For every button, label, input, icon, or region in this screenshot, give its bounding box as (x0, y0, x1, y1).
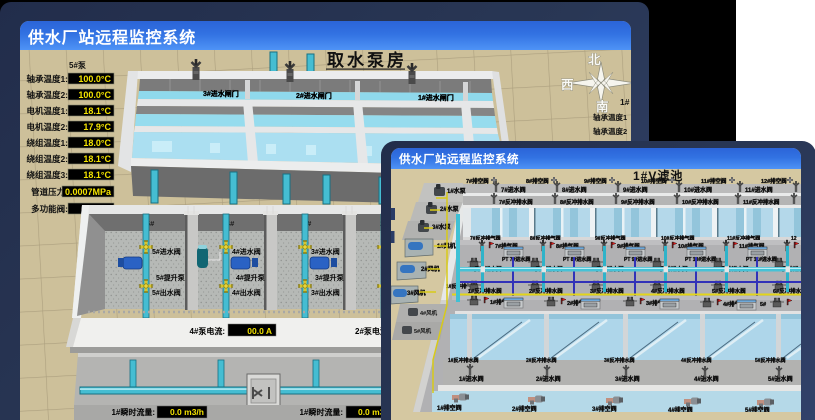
svg-text:18.0°C: 18.0°C (83, 138, 111, 148)
svg-text:8#排空阀: 8#排空阀 (526, 177, 549, 185)
svg-text:3#提升泵: 3#提升泵 (315, 273, 344, 282)
svg-text:3#进水阀: 3#进水阀 (615, 375, 640, 383)
svg-text:3#出水阀: 3#出水阀 (311, 288, 340, 297)
svg-text:1#排空阀: 1#排空阀 (437, 404, 462, 412)
svg-text:3#反冲排水阀: 3#反冲排水阀 (604, 357, 635, 364)
svg-text:南: 南 (596, 99, 609, 114)
svg-text:3#进水闸门: 3#进水闸门 (203, 89, 239, 98)
svg-text:11#反冲排水阀: 11#反冲排水阀 (743, 198, 780, 206)
svg-text:2#水泵: 2#水泵 (440, 205, 460, 213)
svg-text:5#提升泵: 5#提升泵 (156, 273, 185, 282)
svg-text:2#进水阀: 2#进水阀 (536, 375, 561, 383)
svg-text:3#水泵: 3#水泵 (432, 223, 452, 231)
svg-text:供水厂站远程监控系统: 供水厂站远程监控系统 (398, 152, 519, 166)
svg-text:5#进水阀: 5#进水阀 (152, 247, 181, 256)
svg-text:1#进水阀: 1#进水阀 (459, 375, 484, 383)
svg-text:11#进水阀: 11#进水阀 (745, 186, 773, 194)
svg-text:4#出水阀: 4#出水阀 (232, 288, 261, 297)
svg-text:电机温度1:: 电机温度1: (26, 106, 68, 116)
svg-text:5#: 5# (760, 302, 766, 308)
svg-text:5#风机: 5#风机 (414, 327, 432, 335)
svg-text:9#反冲排水阀: 9#反冲排水阀 (621, 198, 655, 206)
svg-text:1#水泵: 1#水泵 (447, 187, 467, 195)
svg-text:7#进水阀: 7#进水阀 (501, 186, 526, 194)
svg-text:PT 7#进水阀: PT 7#进水阀 (502, 256, 530, 263)
svg-text:10#反冲排水阀: 10#反冲排水阀 (682, 198, 719, 206)
svg-text:11#排空阀: 11#排空阀 (701, 177, 727, 185)
svg-text:10#排空阀: 10#排空阀 (641, 177, 667, 185)
svg-text:00.0 A: 00.0 A (247, 326, 272, 336)
svg-text:12#排空阀: 12#排空阀 (761, 177, 787, 185)
svg-text:4#反冲排水阀: 4#反冲排水阀 (681, 357, 712, 364)
svg-text:7#反冲排水阀: 7#反冲排水阀 (499, 198, 533, 206)
svg-text:多功能阀:: 多功能阀: (31, 204, 68, 214)
svg-text:4#进水阀: 4#进水阀 (694, 375, 719, 383)
svg-text:1#瞬时流量:: 1#瞬时流量: (299, 407, 343, 417)
svg-text:18.1°C: 18.1°C (83, 154, 111, 164)
svg-text:绕组温度1:: 绕组温度1: (26, 138, 68, 148)
svg-text:10#进水阀: 10#进水阀 (684, 186, 712, 194)
svg-text:绕组温度3:: 绕组温度3: (26, 170, 68, 180)
svg-text:2#排空阀: 2#排空阀 (512, 405, 537, 413)
svg-text:9#排空阀: 9#排空阀 (584, 177, 607, 185)
svg-text:18.1°C: 18.1°C (83, 170, 111, 180)
svg-text:0.0 m3/h: 0.0 m3/h (170, 407, 204, 417)
svg-text:8#反冲排水阀: 8#反冲排水阀 (560, 198, 594, 206)
svg-text:电机温度2:: 电机温度2: (26, 122, 68, 132)
svg-text:PT 9#进水阀: PT 9#进水阀 (624, 256, 652, 263)
svg-text:轴承温度2: 轴承温度2 (593, 126, 627, 136)
svg-text:3#排空阀: 3#排空阀 (592, 405, 617, 413)
svg-text:1#反冲排水阀: 1#反冲排水阀 (448, 357, 479, 364)
svg-text:4#提升泵: 4#提升泵 (236, 273, 265, 282)
svg-text:100.0°C: 100.0°C (78, 90, 111, 100)
svg-text:4#进水阀: 4#进水阀 (232, 247, 261, 256)
svg-text:2#反冲排水阀: 2#反冲排水阀 (526, 357, 557, 364)
svg-text:8#进水阀: 8#进水阀 (562, 186, 587, 194)
svg-text:供水厂站远程监控系统: 供水厂站远程监控系统 (27, 28, 196, 47)
svg-text:轴承温度2:: 轴承温度2: (26, 90, 68, 100)
svg-text:2#进水闸门: 2#进水闸门 (296, 91, 332, 100)
svg-text:西: 西 (561, 78, 574, 92)
svg-text:轴承温度1: 轴承温度1 (593, 112, 627, 122)
svg-text:北: 北 (588, 52, 601, 67)
svg-text:绕组温度2:: 绕组温度2: (26, 154, 68, 164)
svg-text:1#: 1# (620, 97, 630, 107)
svg-text:1#进水闸门: 1#进水闸门 (418, 93, 454, 102)
svg-text:0.0007MPa: 0.0007MPa (65, 187, 112, 197)
svg-text:18.1°C: 18.1°C (83, 106, 111, 116)
svg-text:7#排空阀: 7#排空阀 (466, 177, 489, 185)
svg-text:5#反冲排水阀: 5#反冲排水阀 (755, 357, 786, 364)
svg-text:取水泵房: 取水泵房 (327, 50, 407, 70)
svg-text:3#进水阀: 3#进水阀 (311, 247, 340, 256)
svg-text:17.9°C: 17.9°C (83, 122, 111, 132)
svg-text:5#泵: 5#泵 (69, 61, 86, 70)
svg-text:4#风机: 4#风机 (420, 309, 438, 317)
svg-text:5#进水阀: 5#进水阀 (768, 375, 793, 383)
svg-text:9#进水阀: 9#进水阀 (623, 186, 648, 194)
svg-text:4#泵电流:: 4#泵电流: (189, 326, 225, 336)
svg-text:轴承温度1:: 轴承温度1: (26, 74, 68, 84)
svg-text:100.0°C: 100.0°C (78, 74, 111, 84)
svg-text:PT 8#进水阀: PT 8#进水阀 (563, 256, 591, 263)
svg-text:5#出水阀: 5#出水阀 (152, 288, 181, 297)
svg-text:3#风机: 3#风机 (407, 289, 426, 297)
svg-text:1#瞬时流量:: 1#瞬时流量: (111, 407, 155, 417)
